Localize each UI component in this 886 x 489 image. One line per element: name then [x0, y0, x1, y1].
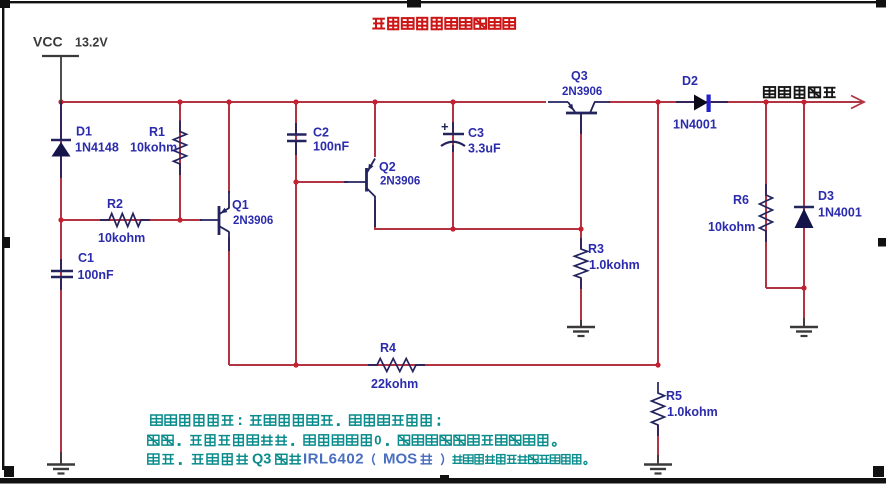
- svg-text:10kohm: 10kohm: [130, 141, 177, 155]
- svg-text:3.3uF: 3.3uF: [468, 142, 501, 156]
- svg-text:D3: D3: [818, 189, 834, 203]
- svg-text:R6: R6: [733, 193, 749, 207]
- svg-text:1N4001: 1N4001: [818, 206, 862, 220]
- svg-text:1N4001: 1N4001: [673, 118, 717, 132]
- svg-text:2N3906: 2N3906: [233, 215, 273, 227]
- svg-text:IRL6402: IRL6402: [303, 451, 364, 468]
- svg-text:R4: R4: [380, 341, 396, 355]
- svg-text:1.0kohm: 1.0kohm: [589, 258, 640, 272]
- svg-text:Q1: Q1: [232, 198, 249, 212]
- svg-text:13.2V: 13.2V: [75, 36, 108, 50]
- svg-text:100nF: 100nF: [78, 268, 114, 282]
- svg-text:0: 0: [374, 433, 381, 448]
- svg-text:10kohm: 10kohm: [708, 220, 755, 234]
- svg-text:22kohm: 22kohm: [371, 377, 418, 391]
- svg-text:+: +: [441, 119, 449, 134]
- svg-text:1.0kohm: 1.0kohm: [667, 405, 718, 419]
- svg-text:1N4148: 1N4148: [75, 141, 119, 155]
- svg-text:Q2: Q2: [379, 160, 396, 174]
- svg-text:D2: D2: [682, 74, 698, 88]
- svg-text:R1: R1: [149, 125, 165, 139]
- svg-text:2N3906: 2N3906: [380, 176, 420, 188]
- svg-text:R2: R2: [107, 197, 123, 211]
- svg-text:C1: C1: [78, 251, 94, 265]
- svg-text:100nF: 100nF: [313, 140, 349, 154]
- svg-text:2N3906: 2N3906: [562, 86, 602, 98]
- svg-text:C2: C2: [313, 126, 329, 140]
- svg-text:Q3: Q3: [252, 452, 271, 468]
- svg-text:MOS: MOS: [383, 451, 417, 468]
- svg-text:R5: R5: [666, 389, 682, 403]
- svg-text:D1: D1: [76, 125, 92, 139]
- svg-text:10kohm: 10kohm: [98, 231, 145, 245]
- svg-text:VCC: VCC: [33, 34, 63, 50]
- svg-text:C3: C3: [468, 126, 484, 140]
- svg-text:R3: R3: [588, 242, 604, 256]
- svg-text:Q3: Q3: [571, 69, 588, 83]
